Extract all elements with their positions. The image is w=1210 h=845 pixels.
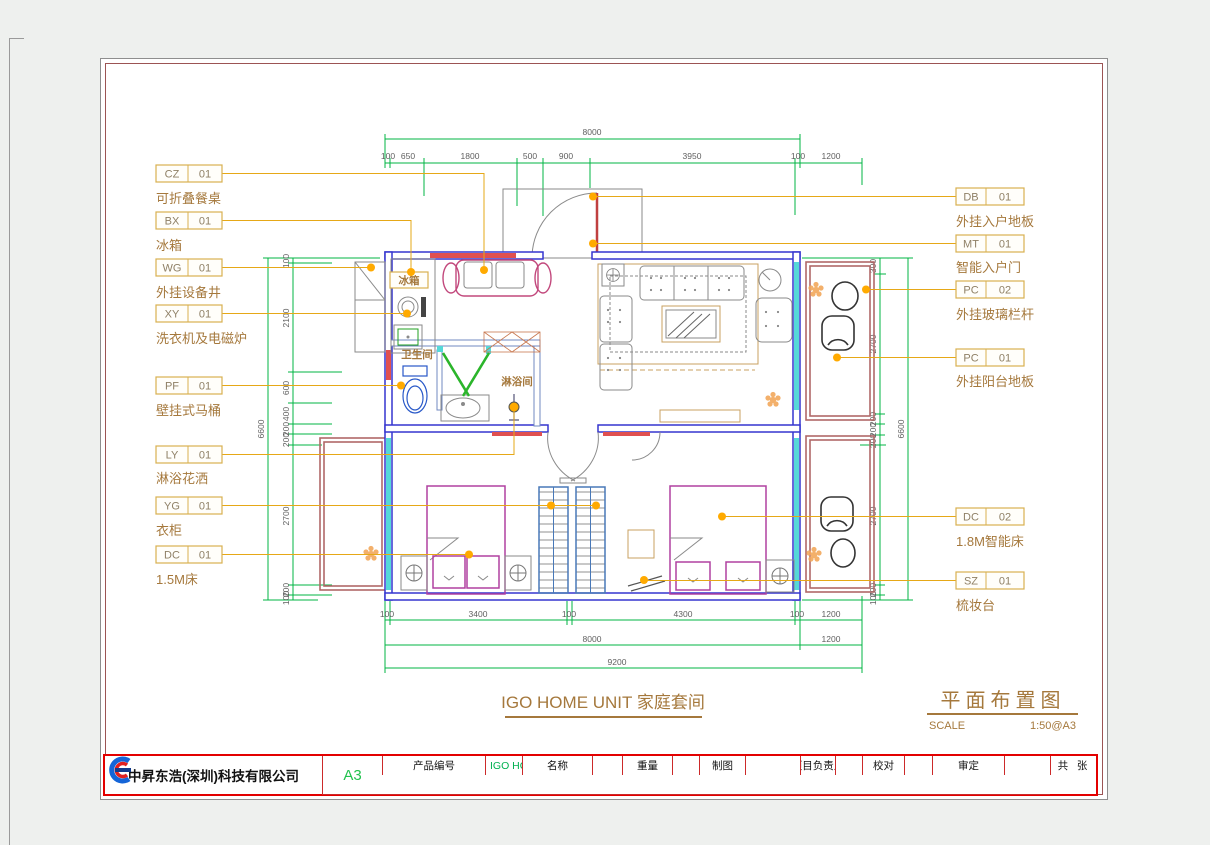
callout-db-01: DB 01 外挂入户地板 [956,188,1034,229]
callout-code: XY [165,309,180,321]
name-label: 名称 [522,756,592,775]
scale-value-cell: 1:50 [622,794,672,795]
callout-yg-01: YG 01 衣柜 [156,497,222,538]
callout-code: DB [963,192,978,204]
dim-bot-9200: 9200 [608,657,627,667]
callout-num: 01 [199,309,211,321]
material-value [522,794,592,795]
dim-bot-0: 100 [380,609,394,619]
balcony-bottom-right [806,436,874,592]
callout-desc: 可折叠餐桌 [156,191,221,206]
callout-num: 01 [199,169,211,181]
callout-ly-01: LY 01 淋浴花洒 [156,446,222,486]
shower-label: 淋浴间 [501,375,533,388]
callout-code: PC [963,285,978,297]
bedroom1 [401,486,605,594]
callout-desc: 外挂入户地板 [956,214,1034,229]
tv-cabinet [660,410,740,422]
dining-table [443,260,551,296]
glass-window-bedroom1 [386,438,391,590]
bedroom2 [628,486,794,594]
callout-code: MT [963,239,979,251]
callout-num: 01 [199,216,211,228]
date-label: 日期 [904,794,932,795]
door-track-left [492,432,542,436]
callout-desc: 智能入户门 [956,260,1021,275]
callout-dc-02: DC 02 1.8M智能床 [956,508,1024,549]
drawing-no-value [382,794,485,795]
callout-desc: 冰箱 [156,238,182,253]
dim-left-3: 400 [281,407,291,421]
drafting-value [745,756,800,775]
door-track-right [603,432,650,436]
review-value [862,794,904,795]
bathroom-doors [443,353,489,396]
design-value [699,794,745,795]
callout-num: 01 [999,192,1011,204]
wall-red-segment-left [386,350,391,380]
company-name: 中昇东浩(深圳)科技有限公司 [128,765,299,785]
bathroom-label: 卫生间 [401,348,433,361]
dim-top-1: 650 [401,151,415,161]
approval-label: 审定 [932,756,1004,775]
callout-desc: 淋浴花洒 [156,471,208,486]
dim-top-5: 3950 [683,151,702,161]
dressing-table [628,530,654,558]
dim-right-overall: 6600 [896,419,906,438]
callout-num: 01 [999,239,1011,251]
callout-bx-01: BX 01 冰箱 [156,212,222,253]
callout-wg-01: WG 01 外挂设备井 [156,259,222,300]
dim-bot-1: 3400 [469,609,488,619]
callout-code: PF [165,381,179,393]
callout-desc: 洗衣机及电磁炉 [156,331,247,346]
title-block: 中昇东浩(深圳)科技有限公司 产品编号 IGO HOME UNIT 家庭套间 名… [103,754,1098,796]
dim-top-3: 500 [523,151,537,161]
callout-xy-01: XY 01 洗衣机及电磁炉 [156,305,247,346]
callout-num: 01 [199,450,211,462]
scale-value: 1:50@A3 [1030,720,1076,732]
plan-caption: IGO HOME UNIT 家庭套间 [501,693,705,712]
dim-top-0: 100 [381,151,395,161]
callout-code: WG [163,263,182,275]
name-value [592,756,622,775]
callout-code: CZ [165,169,180,181]
paper-size: A3 [322,756,382,794]
company-logo-icon [105,756,139,784]
weight-label: 重量 [622,756,672,775]
living-room [598,264,792,422]
callout-code: YG [164,501,180,513]
dim-top-7: 1200 [822,151,841,161]
drafting-label: 制图 [699,756,745,775]
entry-door [503,189,642,258]
callout-num: 01 [999,576,1011,588]
floor-plan-drawing: 8000 100 650 1800 500 900 3950 100 1200 … [100,58,1108,754]
callout-num: 01 [199,501,211,513]
dim-left-0: 100 [281,254,291,268]
product-no-value: IGO HOME UNIT 家庭套间 [485,756,522,775]
standardization-label: 标准化 [745,794,800,795]
dim-bot-1200: 1200 [822,634,841,644]
corner-lamp-table [602,264,624,286]
callout-desc: 衣柜 [156,523,182,538]
callout-num: 01 [199,381,211,393]
pm-label: 项目负责人 [800,756,835,775]
dim-bot-8000: 8000 [583,634,602,644]
dim-left-6: 2700 [281,506,291,525]
dim-bot-3: 4300 [674,609,693,619]
approval-value [1004,756,1050,775]
cad-viewport: 8000 100 650 1800 500 900 3950 100 1200 … [0,0,1210,844]
dim-bot-5: 1200 [822,609,841,619]
callout-sz-01: SZ 01 梳妆台 [956,572,1024,613]
callout-dc-01: DC 01 1.5M床 [156,546,222,587]
total-sheets-label: 共 张 [1050,756,1094,775]
dim-left-5: 200 [281,433,291,447]
callout-code: LY [166,450,179,462]
callout-desc: 外挂玻璃栏杆 [956,307,1034,322]
glass-door-living [794,262,799,410]
wall-red-segment-top [430,253,516,258]
callout-code: SZ [964,576,978,588]
balcony-bottom-left [320,438,386,590]
dim-bot-2: 100 [562,609,576,619]
callout-desc: 壁挂式马桶 [156,403,221,418]
callout-pf-01: PF 01 壁挂式马桶 [156,377,222,418]
material-label: 材料 [485,794,522,795]
callout-cz-01: CZ 01 可折叠餐桌 [156,165,222,206]
company-cell: 中昇东浩(深圳)科技有限公司 [105,756,322,794]
callout-num: 02 [999,512,1011,524]
drawing-title: 平面布置图 [941,689,1066,712]
dim-top-6: 100 [791,151,805,161]
callout-code: BX [165,216,180,228]
drawing-no-label: 图号 [322,794,382,795]
proofread-label: 校对 [862,756,904,775]
equipment-shaft [355,262,385,352]
callout-num: 02 [999,285,1011,297]
date-value: 2025.03.06 [932,794,1004,795]
callout-num: 01 [199,263,211,275]
toilet [403,366,427,413]
hall-doors [548,432,660,483]
kitchen-sink [394,325,422,349]
callout-num: 01 [199,550,211,562]
callout-mt-01: MT 01 智能入户门 [956,235,1024,275]
callout-code: DC [963,512,979,524]
dim-right-7: 100 [868,591,878,605]
scale-label: SCALE [929,720,965,732]
coffee-table [662,306,720,342]
product-no-label: 产品编号 [382,756,485,775]
proofread-value [904,756,932,775]
callout-desc: 梳妆台 [956,598,995,613]
dim-top-overall: 8000 [583,127,602,137]
dim-left-2: 600 [281,381,291,395]
fridge-label: 冰箱 [399,274,420,287]
wash-basin [441,395,489,421]
standardization-value [800,794,835,795]
pm-value [835,756,862,775]
callout-desc: 外挂设备井 [156,285,221,300]
callout-pc-02: PC 02 外挂玻璃栏杆 [956,281,1034,322]
sofa [600,266,792,390]
dim-top-2: 1800 [461,151,480,161]
glass-window-bedroom2 [794,438,799,590]
dim-bot-4: 100 [790,609,804,619]
dim-left-8: 100 [281,591,291,605]
callout-code: DC [164,550,180,562]
dim-left-1: 2100 [281,308,291,327]
design-label: 设计 [672,794,699,795]
review-label: 审核 [835,794,862,795]
captions: IGO HOME UNIT 家庭套间 平面布置图 SCALE 1:50@A3 [501,689,1078,732]
callout-code: PC [963,353,978,365]
callout-desc: 1.5M床 [156,572,198,587]
scale-label-cell: 比例 [592,794,622,795]
dim-left-overall: 6600 [256,419,266,438]
sheet-no-label: 第 张 [1004,794,1050,795]
plant-living [765,392,780,407]
dim-top-4: 900 [559,151,573,161]
callout-desc: 1.8M智能床 [956,534,1024,549]
callout-num: 01 [999,353,1011,365]
rug [598,264,758,364]
window-frame-line [9,38,24,845]
weight-value [672,756,699,775]
callout-desc: 外挂阳台地板 [956,374,1034,389]
callout-pc-01: PC 01 外挂阳台地板 [956,349,1034,389]
